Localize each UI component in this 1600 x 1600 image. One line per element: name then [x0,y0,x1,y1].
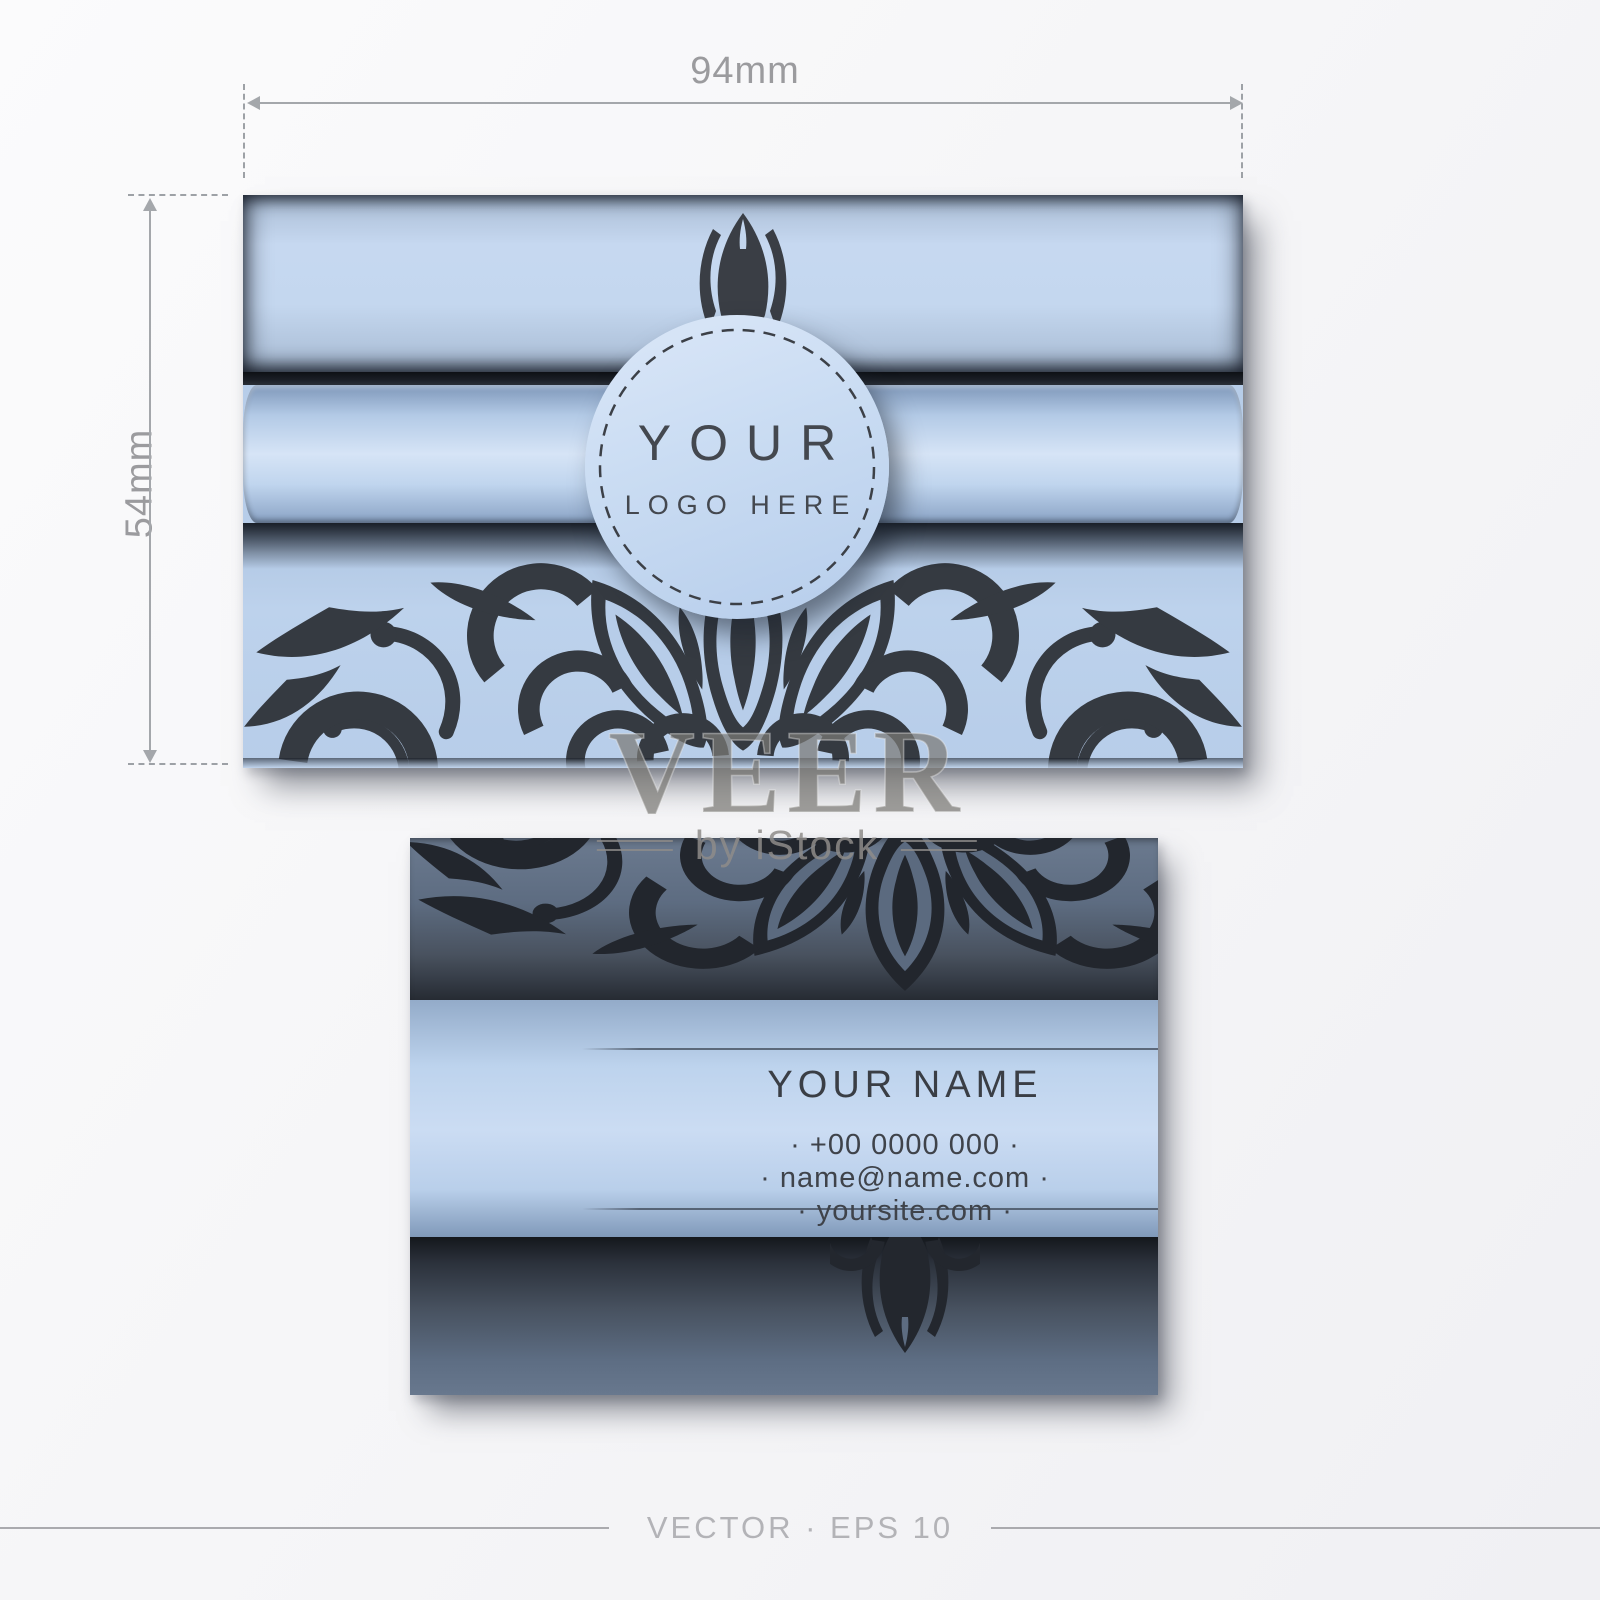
footer-rule-left [0,1527,609,1529]
guide-dashed-left [243,84,245,178]
arrow-down-icon [143,750,157,763]
watermark-byline: by iStock [695,822,879,869]
back-bottom-band [410,1237,1158,1395]
arrow-up-icon [143,198,157,211]
stock-image-canvas: 94mm 54mm YOUR LOGO HERE [0,0,1600,1600]
footer-caption-row: VECTOR · EPS 10 [0,1510,1600,1546]
logo-placeholder-line1: YOUR [638,414,854,472]
watermark-byline-row: by iStock [597,822,977,869]
height-dimension-line [149,200,151,761]
height-dimension-label: 54mm [119,424,162,544]
phone-placeholder: · +00 0000 000 · [760,1129,1050,1162]
width-dimension-label: 94mm [690,50,800,93]
watermark-dash-right [901,840,977,851]
logo-placeholder-line2: LOGO HERE [625,490,858,521]
guide-dashed-top [128,194,228,196]
bud-ornament-icon [830,1237,980,1357]
footer-caption: VECTOR · EPS 10 [647,1510,953,1546]
watermark-dash-left [597,840,673,851]
website-placeholder: · yoursite.com · [760,1195,1050,1228]
footer-rule-right [991,1527,1600,1529]
contact-block: YOUR NAME · +00 0000 000 · · name@name.c… [760,1064,1050,1228]
logo-badge: YOUR LOGO HERE [585,315,889,619]
watermark-brand: VEER [608,712,965,832]
guide-dashed-right [1241,84,1243,178]
business-card-back: YOUR NAME · +00 0000 000 · · name@name.c… [410,838,1158,1395]
arrow-left-icon [247,96,260,110]
name-placeholder: YOUR NAME [760,1064,1050,1107]
contact-divider-top [582,1048,1158,1050]
business-card-front: YOUR LOGO HERE [243,195,1243,768]
back-contact-band: YOUR NAME · +00 0000 000 · · name@name.c… [410,1000,1158,1237]
width-dimension-line [249,102,1241,104]
guide-dashed-bottom [128,763,228,765]
email-placeholder: · name@name.com · [760,1162,1050,1195]
